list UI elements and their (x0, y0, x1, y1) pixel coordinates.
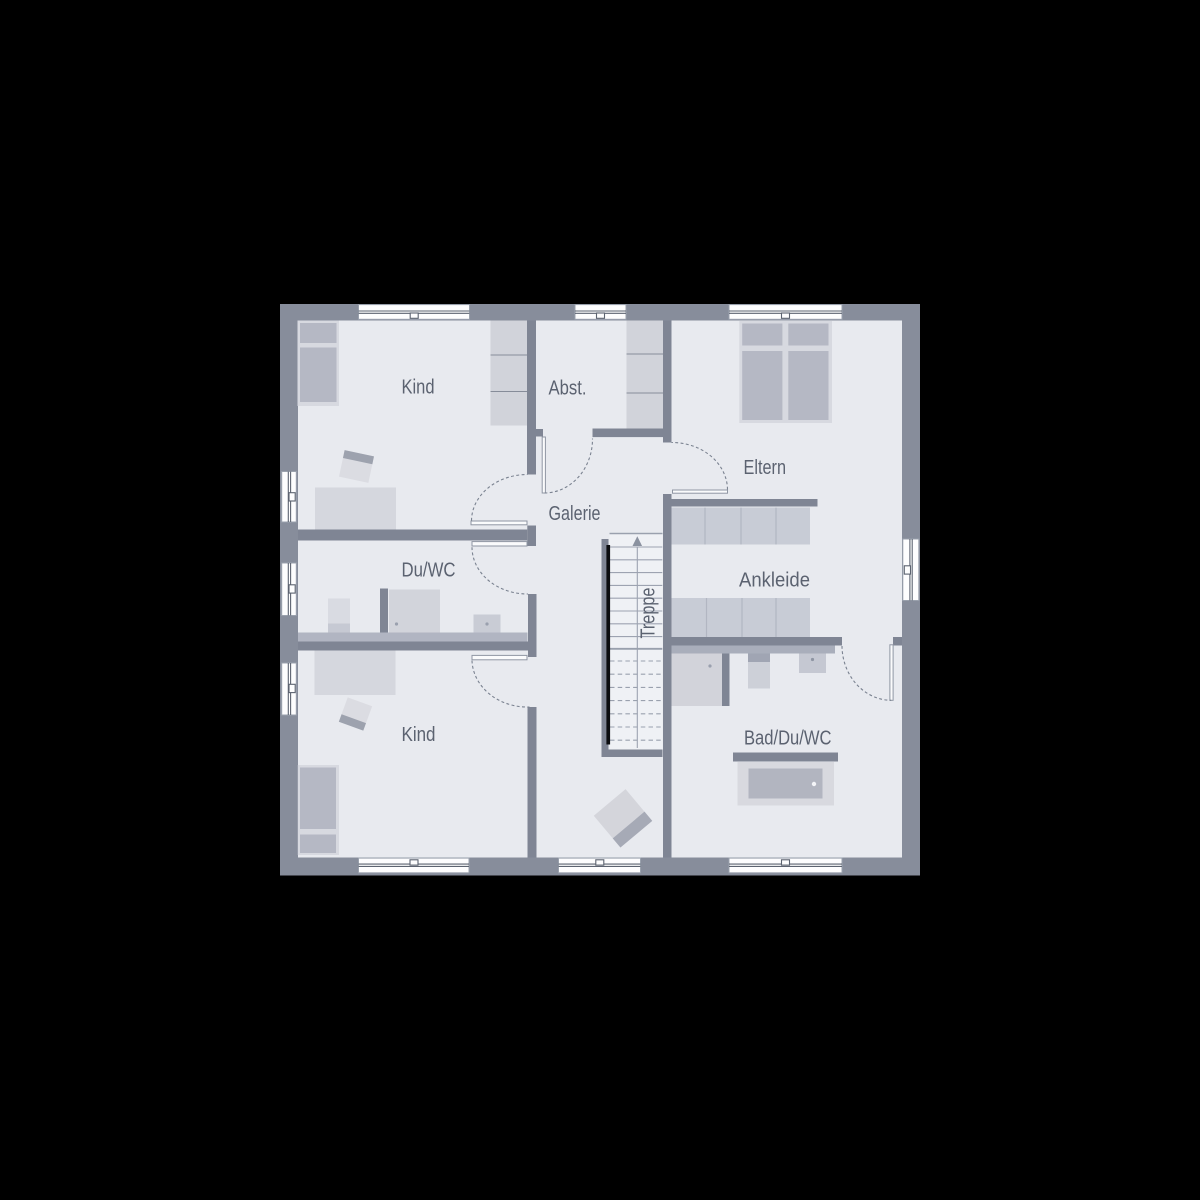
svg-text:Bad/Du/WC: Bad/Du/WC (744, 727, 832, 750)
svg-text:Kind: Kind (402, 375, 435, 398)
svg-text:Du/WC: Du/WC (402, 559, 456, 582)
svg-text:Galerie: Galerie (549, 502, 601, 525)
svg-text:Eltern: Eltern (744, 456, 787, 479)
svg-text:Treppe: Treppe (637, 588, 660, 639)
svg-text:Abst.: Abst. (549, 377, 587, 400)
svg-text:Kind: Kind (402, 723, 436, 746)
svg-text:Ankleide: Ankleide (739, 569, 810, 592)
